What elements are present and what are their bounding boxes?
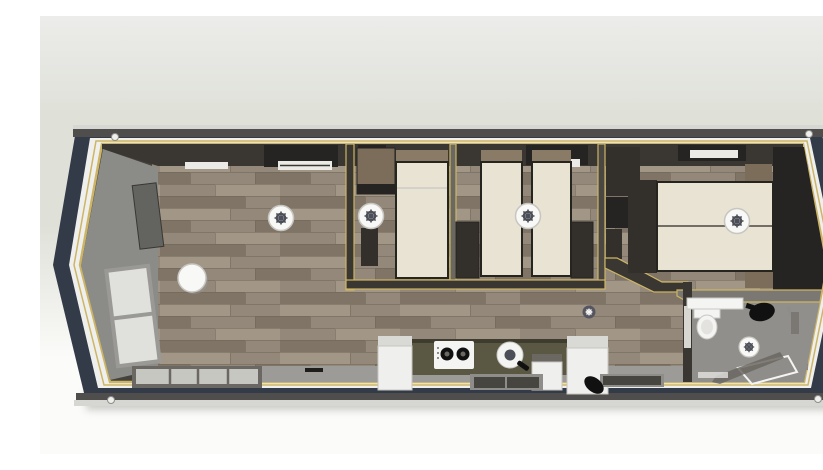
wardrobe-front [357,184,395,194]
cabinet-left-front [378,346,412,390]
window-glass [603,376,661,385]
single-bed-headboard [396,150,448,162]
top-fascia-light [73,125,823,129]
cabinet-mid-top [532,354,562,362]
wall-a [346,144,354,290]
hinge-cap-top-left [112,134,119,141]
window-right [600,374,664,387]
side-table-bottom [745,271,773,288]
vent-slats-entry [185,162,228,169]
room-bedroom-single [357,145,448,278]
vanity-counter [687,298,743,309]
light-gear-icon [365,210,378,223]
ceiling-light-master [725,209,750,234]
fan-gear-icon [585,308,592,315]
side-table-top [745,164,772,182]
hinge-cap-bottom-right [815,396,822,403]
floorplan-canvas [40,16,823,454]
ceiling-light-bedroom2 [516,204,541,229]
roof-vent-slats [690,150,738,158]
ceiling-light-bedroom1 [359,204,384,229]
bath-mat [698,372,728,378]
corner-window-pane-bottom [114,316,157,364]
light-gear-icon [522,210,535,223]
corner-window-pane-top [109,268,152,316]
round-table [178,264,206,292]
wall-c [598,144,605,284]
bathroom-extractor-fan [739,337,759,357]
wall-b [450,144,456,284]
twin-bed-right-headboard [532,150,571,162]
foot-cabinet-left [456,222,479,278]
cabinet-left-top [378,336,412,346]
bedside-cabinets [628,180,657,273]
floorplan-render [40,16,823,454]
foot-cabinet-right [571,222,593,278]
hall-cabinet-3 [606,229,622,259]
top-fascia-dark [73,129,823,137]
room-bathroom [677,282,822,384]
gas-hob [434,341,474,369]
light-gear-icon [731,215,744,228]
window-handle [305,368,323,372]
single-bed [396,162,448,278]
hinge-cap-top-right [806,131,813,138]
hall-extractor-fan [583,306,596,319]
twin-bed-left-headboard [481,150,522,162]
toilet-seat [701,320,713,335]
shower-column [791,312,799,334]
burner-right-cap [461,352,466,357]
fan-gear-icon [744,342,754,352]
sink-drain [505,350,516,361]
cabinet-right-top [567,336,608,348]
wall-bedrooms-south [346,280,605,289]
bathroom-door [684,306,691,348]
hinge-cap-bottom-left [108,397,115,404]
window-behind-sink [470,374,543,390]
burner-left-cap [445,352,450,357]
bottom-fascia-light [74,400,823,406]
ceiling-light-living [269,206,294,231]
light-gear-icon [275,212,288,225]
front-window-living [132,366,262,388]
bottom-fascia-dark [76,393,823,400]
bedside-cabinet [361,228,378,266]
roof-vent-living [264,145,338,170]
